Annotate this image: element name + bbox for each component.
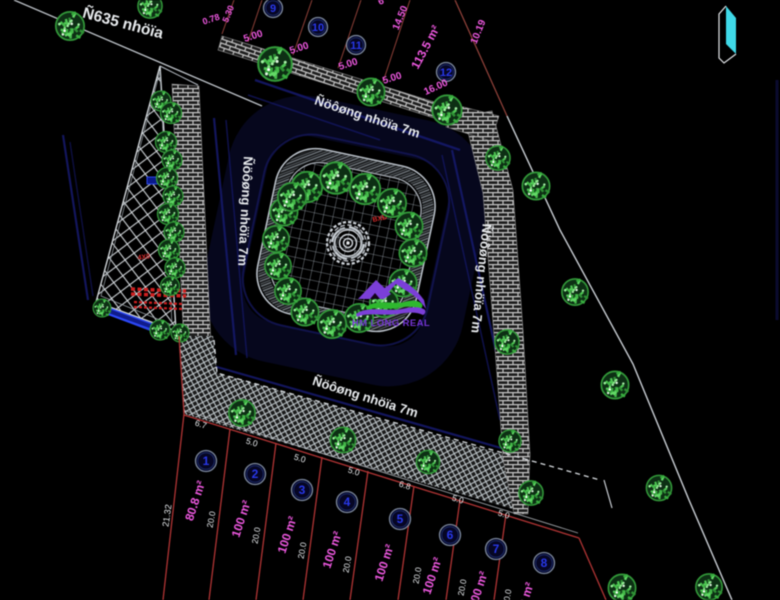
svg-text:HM LONG REAL: HM LONG REAL — [352, 318, 430, 329]
svg-text:1: 1 — [203, 454, 210, 468]
svg-text:8: 8 — [541, 556, 548, 570]
svg-text:6: 6 — [447, 528, 454, 542]
svg-text:20.0: 20.0 — [501, 588, 514, 600]
svg-text:2: 2 — [252, 467, 259, 481]
svg-text:12: 12 — [440, 67, 452, 79]
svg-text:9: 9 — [270, 3, 276, 15]
svg-text:5: 5 — [397, 512, 404, 526]
svg-text:11: 11 — [350, 40, 362, 52]
svg-text:4: 4 — [344, 495, 351, 509]
svg-text:10: 10 — [312, 22, 324, 34]
svg-text:3: 3 — [299, 483, 306, 497]
svg-text:7: 7 — [493, 542, 500, 556]
